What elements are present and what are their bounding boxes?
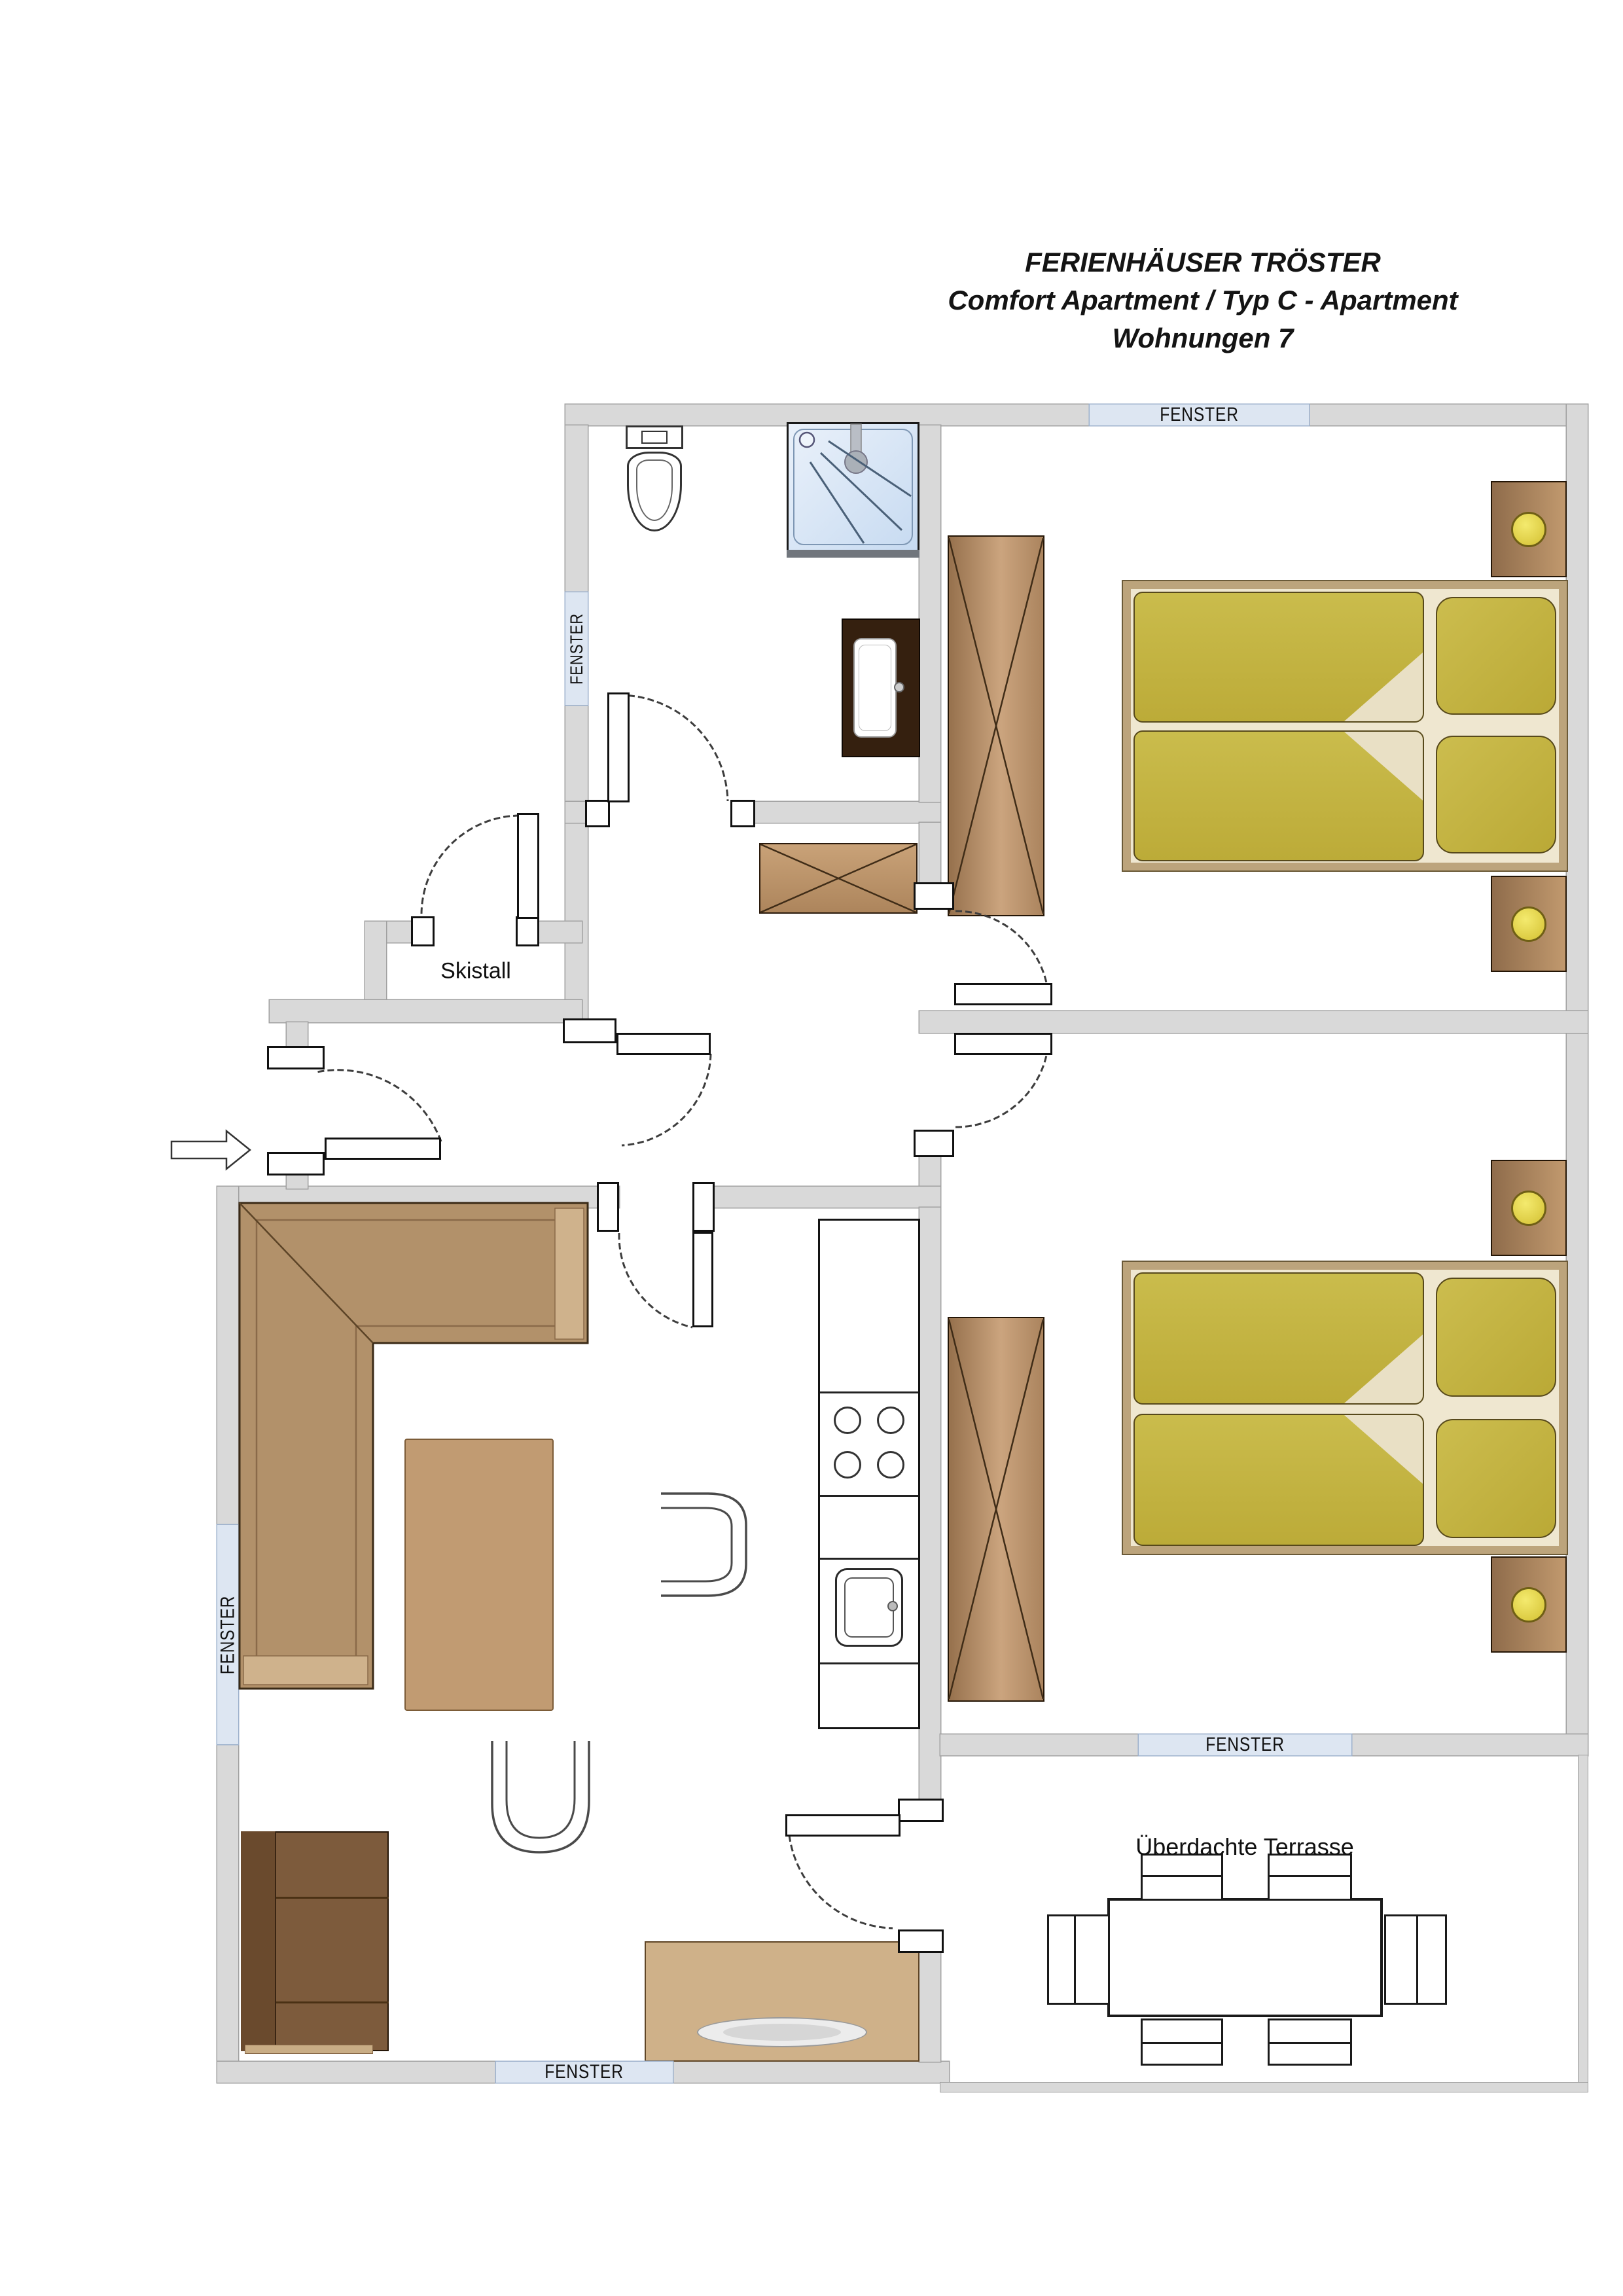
- doorleaf-living: [692, 1232, 713, 1327]
- doorleaf-hall: [616, 1033, 711, 1055]
- door-swing-terrace: [789, 1835, 893, 1928]
- plan-title: FERIENHÄUSER TRÖSTER Comfort Apartment /…: [948, 243, 1457, 357]
- door-swing-skistall: [421, 816, 520, 914]
- doorleaf-entry: [325, 1138, 441, 1160]
- title-line-2: Comfort Apartment / Typ C - Apartment: [948, 281, 1457, 319]
- doorframe-bathroom-left: [585, 800, 610, 827]
- doorleaf-bedroom2: [954, 1033, 1052, 1055]
- doorframe-hall: [563, 1018, 616, 1043]
- entrance-arrow-icon: [171, 1131, 250, 1169]
- label-skistall: Skistall: [440, 959, 511, 984]
- bench-end-right: [555, 1208, 584, 1339]
- title-line-3: Wohnungen 7: [948, 319, 1457, 357]
- doorframe-living-right: [692, 1182, 715, 1232]
- door-swing-bedroom1: [955, 911, 1047, 986]
- title-line-1: FERIENHÄUSER TRÖSTER: [948, 243, 1457, 281]
- doorleaf-skistall: [517, 813, 539, 919]
- door-swing-living: [619, 1233, 692, 1327]
- door-swing-bathroom: [618, 695, 728, 801]
- shower-arm: [851, 424, 861, 454]
- doorframe-terrace-bottom: [898, 1929, 944, 1953]
- doorframe-bedroom2: [914, 1130, 954, 1157]
- corner-bench: [240, 1203, 588, 1689]
- shower-spray-line: [810, 462, 864, 543]
- doorframe-entry-bottom: [267, 1152, 325, 1175]
- bench-end-bottom: [243, 1656, 368, 1685]
- shower-spray-line: [829, 441, 911, 496]
- door-swing-hall: [622, 1054, 711, 1145]
- floor-plan-page: FERIENHÄUSER TRÖSTER Comfort Apartment /…: [0, 0, 1623, 2296]
- door-swing-bedroom2: [955, 1052, 1047, 1127]
- doorframe-bathroom-right: [730, 800, 755, 827]
- doorleaf-terrace: [785, 1814, 901, 1837]
- doorframe-entry-top: [267, 1046, 325, 1069]
- label-terrace: Überdachte Terrasse: [1135, 1833, 1354, 1861]
- shower-drain: [800, 433, 814, 447]
- doorframe-bedroom1: [914, 882, 954, 910]
- doorleaf-bathroom: [607, 692, 630, 802]
- doorleaf-bedroom1: [954, 983, 1052, 1005]
- door-swing-entry: [317, 1070, 441, 1141]
- doorframe-terrace-top: [898, 1799, 944, 1822]
- doorframe-skistall-right: [516, 916, 539, 946]
- doorframe-living-left: [597, 1182, 619, 1232]
- doorframe-skistall-left: [411, 916, 435, 946]
